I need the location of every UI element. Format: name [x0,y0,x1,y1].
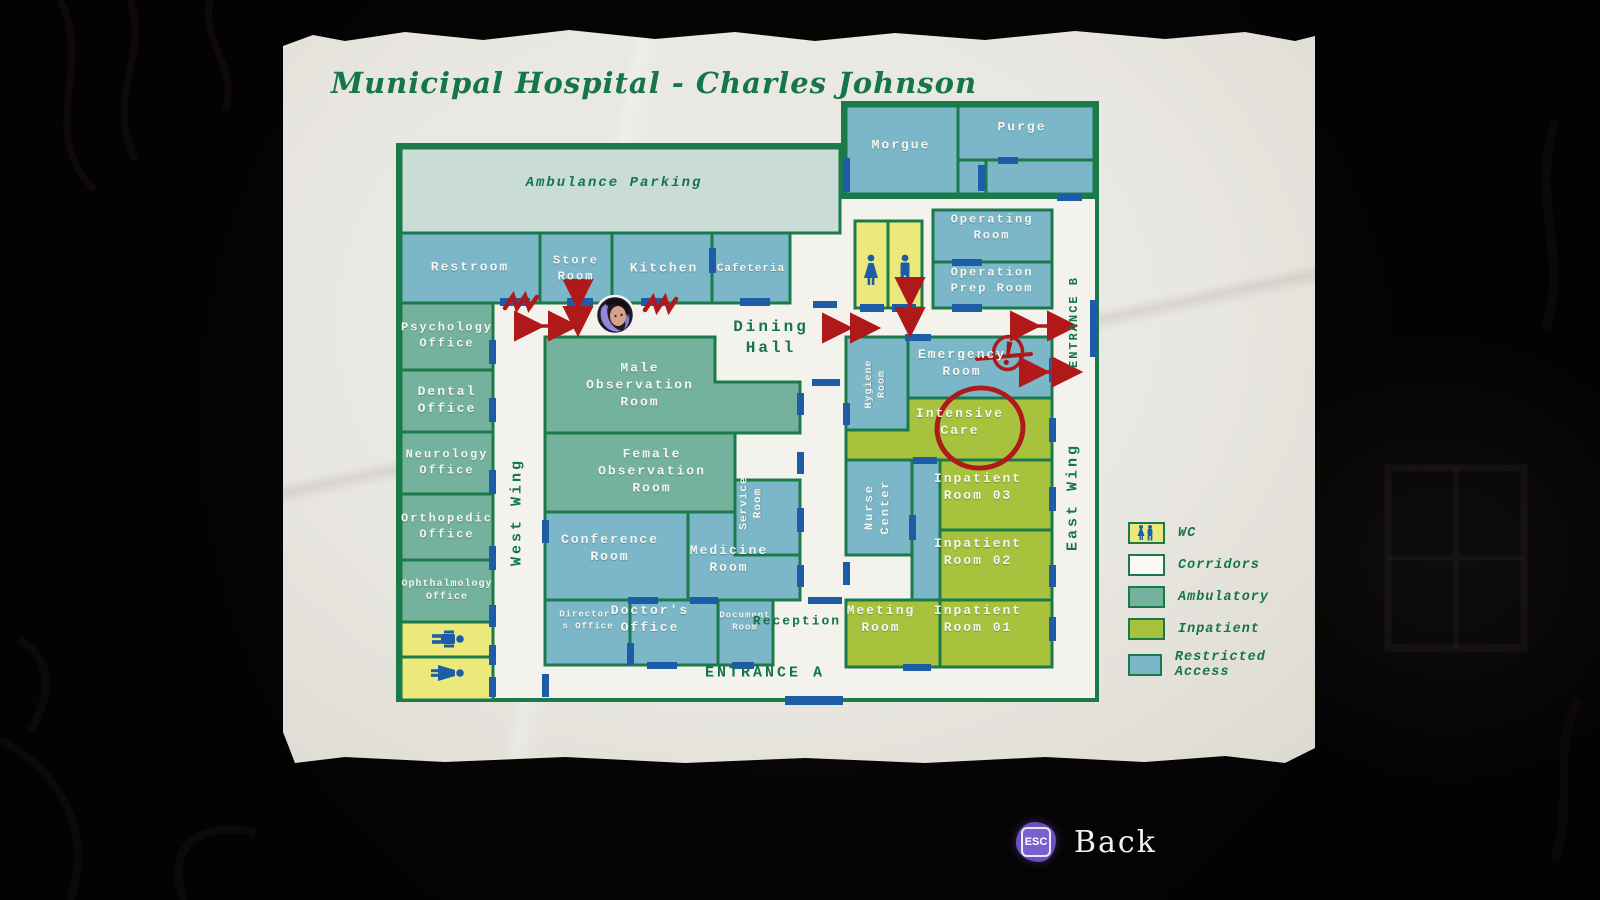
room-document [718,600,773,665]
room-doctors-office [630,600,718,665]
back-button[interactable]: ESC Back [1016,822,1157,862]
room-inpatient-02 [940,530,1052,600]
legend-label-restricted: Restricted Access [1175,650,1315,680]
room-purge [958,106,1094,160]
legend-label-inpatient: Inpatient [1178,622,1260,637]
room-store [540,233,612,303]
legend-label-corridors: Corridors [1178,558,1260,573]
esc-key-label[interactable]: ESC [1021,827,1051,857]
legend-item-inpatient: Inpatient [1128,618,1315,640]
legend-item-ambulatory: Ambulatory [1128,586,1315,608]
room-directors-office [545,600,630,665]
legend-item-restricted: Restricted Access [1128,650,1315,680]
room-restroom [401,233,540,303]
room-ophthalmology [401,560,493,622]
room-meeting [846,600,940,667]
legend-item-corridors: Corridors [1128,554,1315,576]
room-orthopedic [401,494,493,560]
room-nurse-corridor [912,460,940,600]
room-inpatient-03 [940,460,1052,530]
room-morgue [846,106,958,194]
room-cafeteria [712,233,790,303]
room-dental [401,370,493,432]
legend-restricted-swatch [1128,654,1162,676]
room-service [735,480,800,555]
room-hygiene [846,337,908,430]
room-operation-prep [933,262,1052,308]
room-purge-annex-b [986,160,1094,194]
room-label-ambulance-parking: Ambulance Parking [526,175,703,191]
room-psychology [401,303,493,370]
legend-label-wc: WC [1178,526,1196,541]
map-legend: WC Corridors Ambulatory Inpatient Restri… [1128,522,1315,690]
room-kitchen [612,233,712,303]
room-inpatient-01 [940,600,1052,667]
back-button-label[interactable]: Back [1074,825,1157,860]
legend-label-ambulatory: Ambulatory [1178,590,1269,605]
legend-ambulatory-swatch [1128,586,1165,608]
player-avatar [596,296,634,334]
hospital-map-paper: Municipal Hospital - Charles Johnson Amb… [283,30,1315,763]
room-conference [545,512,688,600]
legend-item-wc: WC [1128,522,1315,544]
legend-wc-swatch [1128,522,1165,544]
room-wc-west-2 [401,657,493,700]
legend-inpatient-swatch [1128,618,1165,640]
room-female-observation [545,433,735,512]
room-operating [933,210,1052,262]
room-nurse-center [846,460,912,555]
room-neurology [401,432,493,494]
legend-corridors-swatch [1128,554,1165,576]
esc-key-icon[interactable]: ESC [1016,822,1056,862]
map-title: Municipal Hospital - Charles Johnson [331,66,977,100]
legend-wc-icons [1130,524,1162,541]
